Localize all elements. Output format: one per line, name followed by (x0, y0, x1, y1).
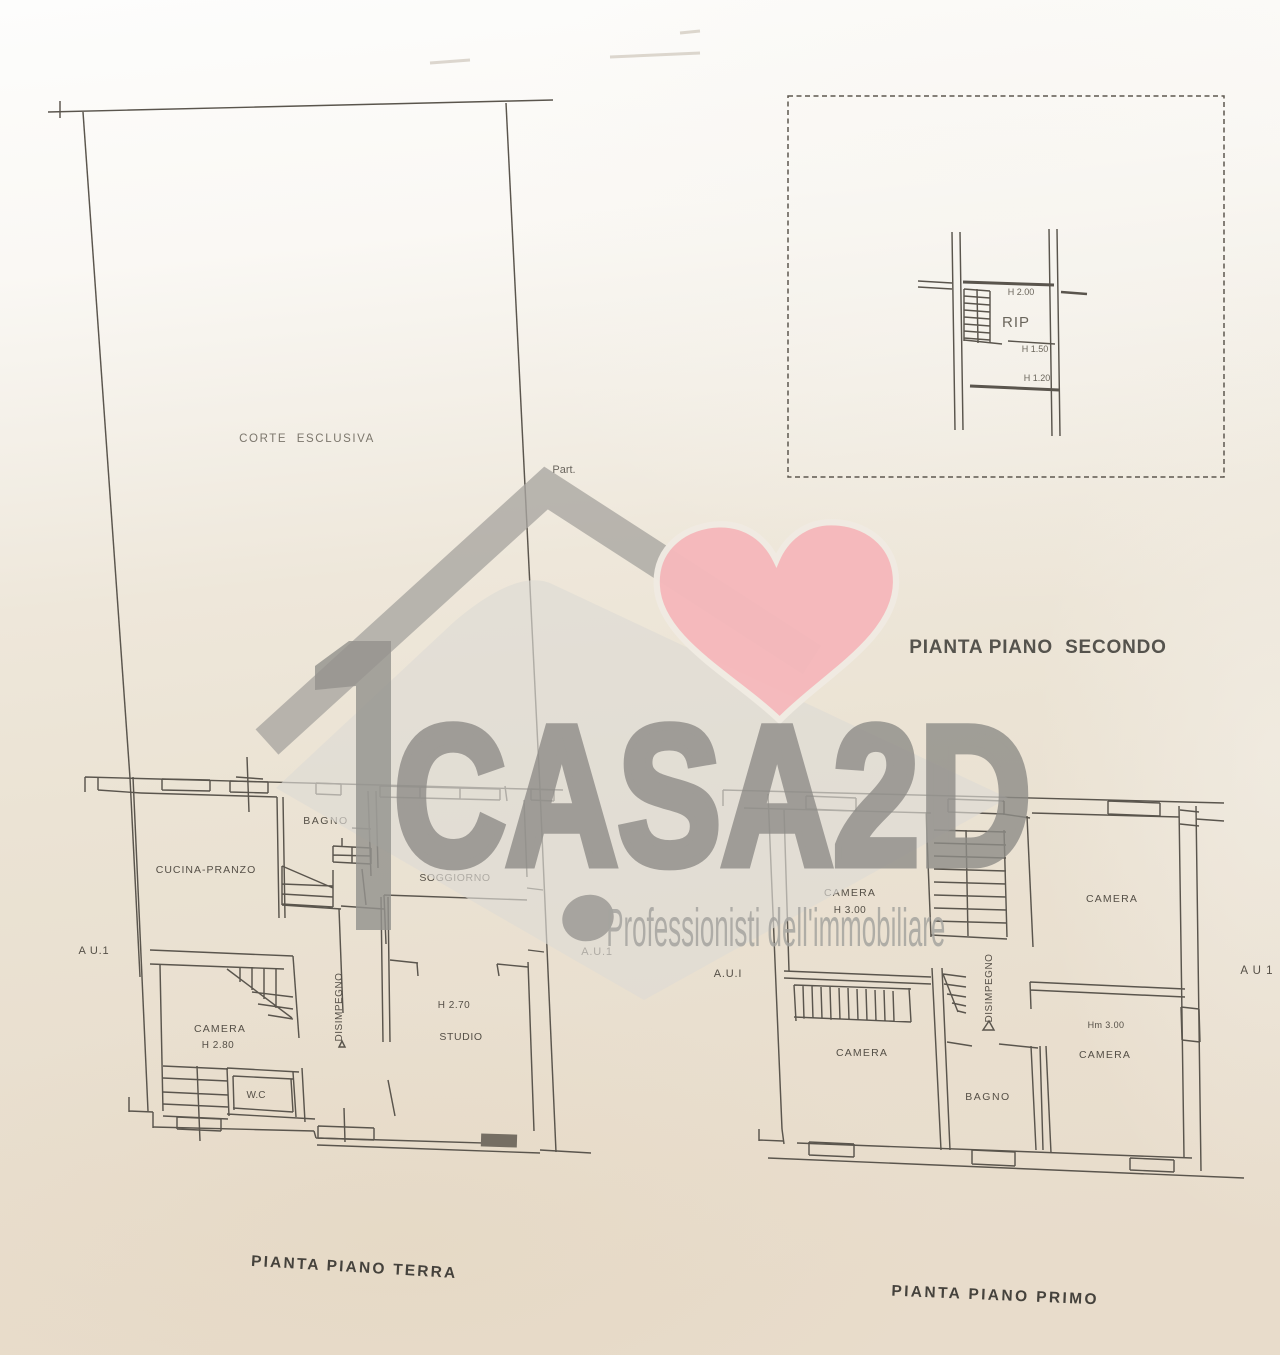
svg-text:A.U.I: A.U.I (714, 968, 742, 980)
svg-text:CAMERA: CAMERA (836, 1047, 888, 1059)
svg-text:CORTE ESCLUSIVA: CORTE ESCLUSIVA (239, 433, 375, 445)
svg-text:CAMERA: CAMERA (1079, 1049, 1131, 1061)
svg-text:H 2.70: H 2.70 (438, 1000, 470, 1011)
svg-text:PIANTA PIANO SECONDO: PIANTA PIANO SECONDO (909, 637, 1166, 658)
svg-text:A U.1: A U.1 (79, 945, 110, 957)
svg-text:Hm 3.00: Hm 3.00 (1088, 1020, 1125, 1030)
svg-text:CAMERA: CAMERA (194, 1023, 246, 1035)
svg-text:Professionisti dell'immobiliar: Professionisti dell'immobiliare (606, 898, 945, 958)
svg-text:H 1.50: H 1.50 (1022, 344, 1049, 354)
svg-text:DISIMPEGNO: DISIMPEGNO (984, 954, 995, 1023)
svg-text:RIP: RIP (1002, 314, 1030, 331)
svg-text:STUDIO: STUDIO (439, 1031, 482, 1043)
svg-text:W.C: W.C (247, 1090, 266, 1101)
svg-text:CASA2D: CASA2D (394, 685, 1031, 907)
svg-text:H 1.20: H 1.20 (1024, 373, 1051, 383)
svg-text:H 2.80: H 2.80 (202, 1040, 234, 1051)
svg-text:DISIMPEGNO: DISIMPEGNO (334, 973, 345, 1042)
svg-text:H 2.00: H 2.00 (1008, 287, 1035, 297)
svg-text:CAMERA: CAMERA (1086, 893, 1138, 905)
svg-text:CUCINA-PRANZO: CUCINA-PRANZO (156, 864, 257, 876)
svg-text:BAGNO: BAGNO (965, 1091, 1010, 1103)
svg-text:A U 1: A U 1 (1240, 965, 1273, 977)
